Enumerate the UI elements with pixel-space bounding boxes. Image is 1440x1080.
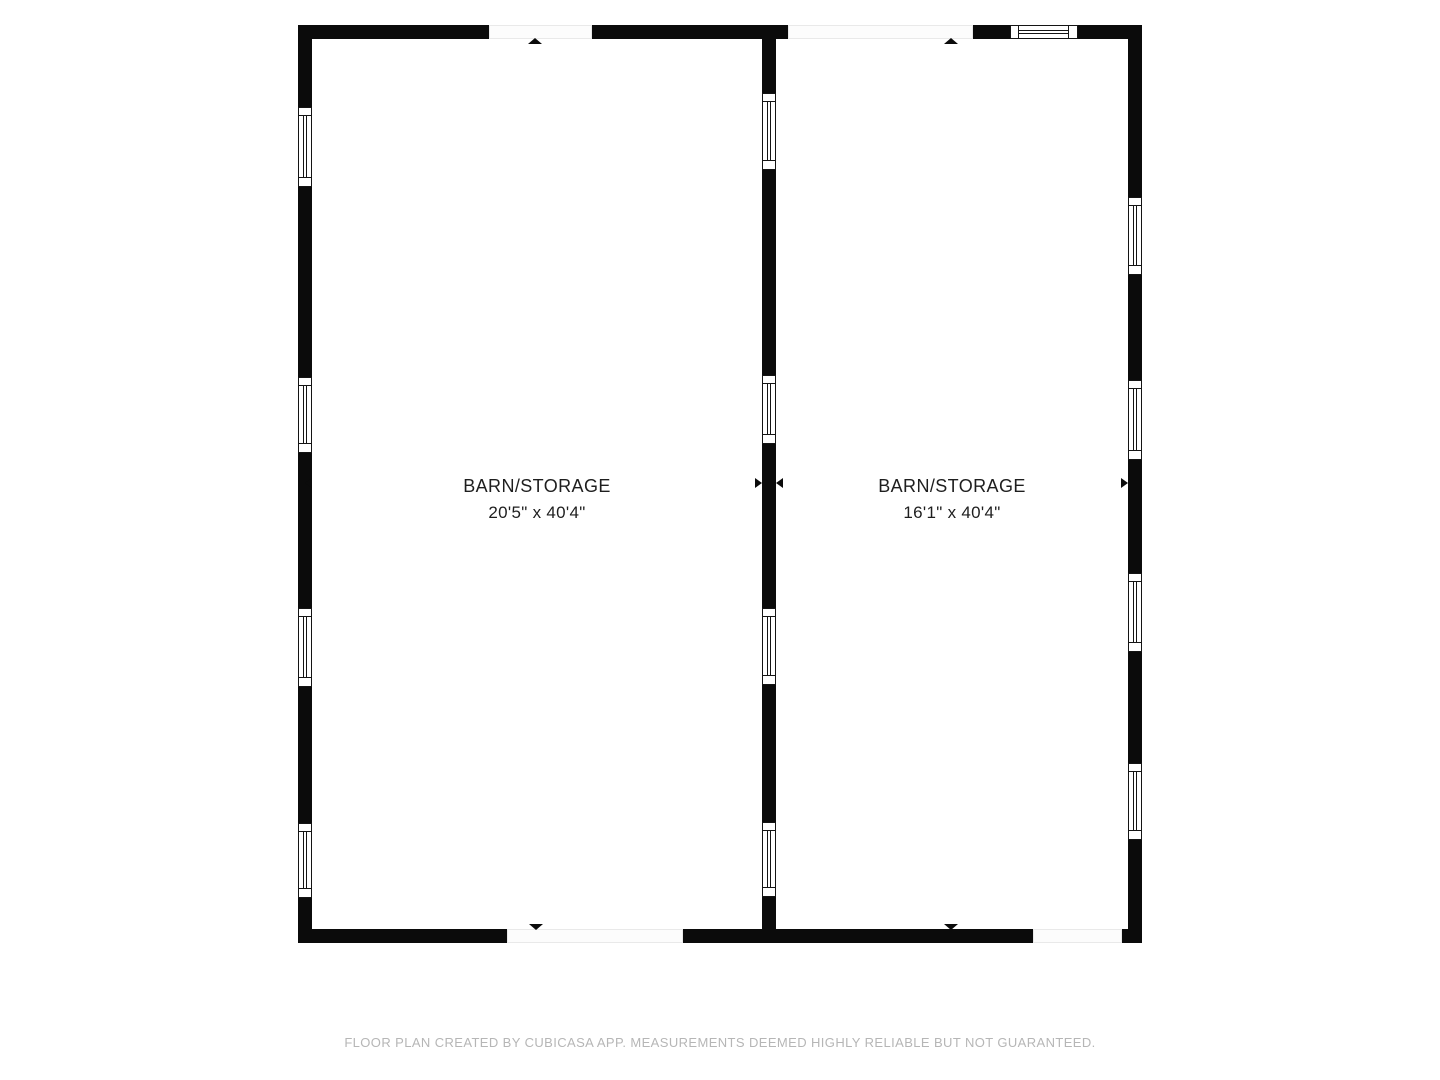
window-symbol xyxy=(298,608,312,687)
wall-bottom-segment xyxy=(298,929,507,943)
floor-plan-page: BARN/STORAGE 20'5" x 40'4" BARN/STORAGE … xyxy=(0,0,1440,1080)
wall-right-segment xyxy=(1128,275,1142,380)
wall-opening xyxy=(489,25,592,39)
room-name: BARN/STORAGE xyxy=(776,476,1128,498)
window-symbol xyxy=(1128,763,1142,840)
room-dimensions: 20'5" x 40'4" xyxy=(312,503,762,523)
wall-right-segment xyxy=(1128,25,1142,197)
room-label-left: BARN/STORAGE 20'5" x 40'4" xyxy=(312,476,762,523)
window-symbol xyxy=(762,608,776,685)
wall-top-segment xyxy=(298,25,489,39)
wall-opening xyxy=(507,929,683,943)
wall-left-segment xyxy=(298,187,312,377)
wall-left-segment xyxy=(298,898,312,943)
room-name: BARN/STORAGE xyxy=(312,476,762,498)
wall-middle-segment xyxy=(762,685,776,822)
wall-right-segment xyxy=(1128,652,1142,763)
wall-opening xyxy=(1033,929,1122,943)
wall-opening xyxy=(788,25,973,39)
window-symbol xyxy=(298,107,312,187)
window-symbol xyxy=(762,375,776,444)
window-symbol xyxy=(762,822,776,897)
measure-arrow-icon xyxy=(305,478,312,488)
room-label-right: BARN/STORAGE 16'1" x 40'4" xyxy=(776,476,1128,523)
wall-left-segment xyxy=(298,687,312,823)
wall-right-segment xyxy=(1128,840,1142,943)
window-symbol xyxy=(298,377,312,453)
window-symbol xyxy=(1010,25,1078,39)
window-symbol xyxy=(762,93,776,170)
wall-middle-segment xyxy=(762,170,776,375)
entry-marker-icon xyxy=(944,38,958,44)
wall-right-segment xyxy=(1128,460,1142,573)
entry-marker-icon xyxy=(944,924,958,930)
window-symbol xyxy=(1128,197,1142,275)
entry-marker-icon xyxy=(529,924,543,930)
window-symbol xyxy=(1128,380,1142,460)
wall-left-segment xyxy=(298,25,312,107)
wall-top-segment xyxy=(592,25,788,39)
wall-middle-segment xyxy=(762,39,776,93)
footer-disclaimer: FLOOR PLAN CREATED BY CUBICASA APP. MEAS… xyxy=(0,1035,1440,1050)
wall-middle-segment xyxy=(762,444,776,608)
entry-marker-icon xyxy=(528,38,542,44)
floor-plan: BARN/STORAGE 20'5" x 40'4" BARN/STORAGE … xyxy=(0,0,1440,1080)
window-symbol xyxy=(298,823,312,898)
wall-top-segment xyxy=(973,25,1010,39)
wall-bottom-segment xyxy=(683,929,1033,943)
window-symbol xyxy=(1128,573,1142,652)
wall-left-segment xyxy=(298,453,312,608)
room-dimensions: 16'1" x 40'4" xyxy=(776,503,1128,523)
wall-middle-segment xyxy=(762,897,776,929)
